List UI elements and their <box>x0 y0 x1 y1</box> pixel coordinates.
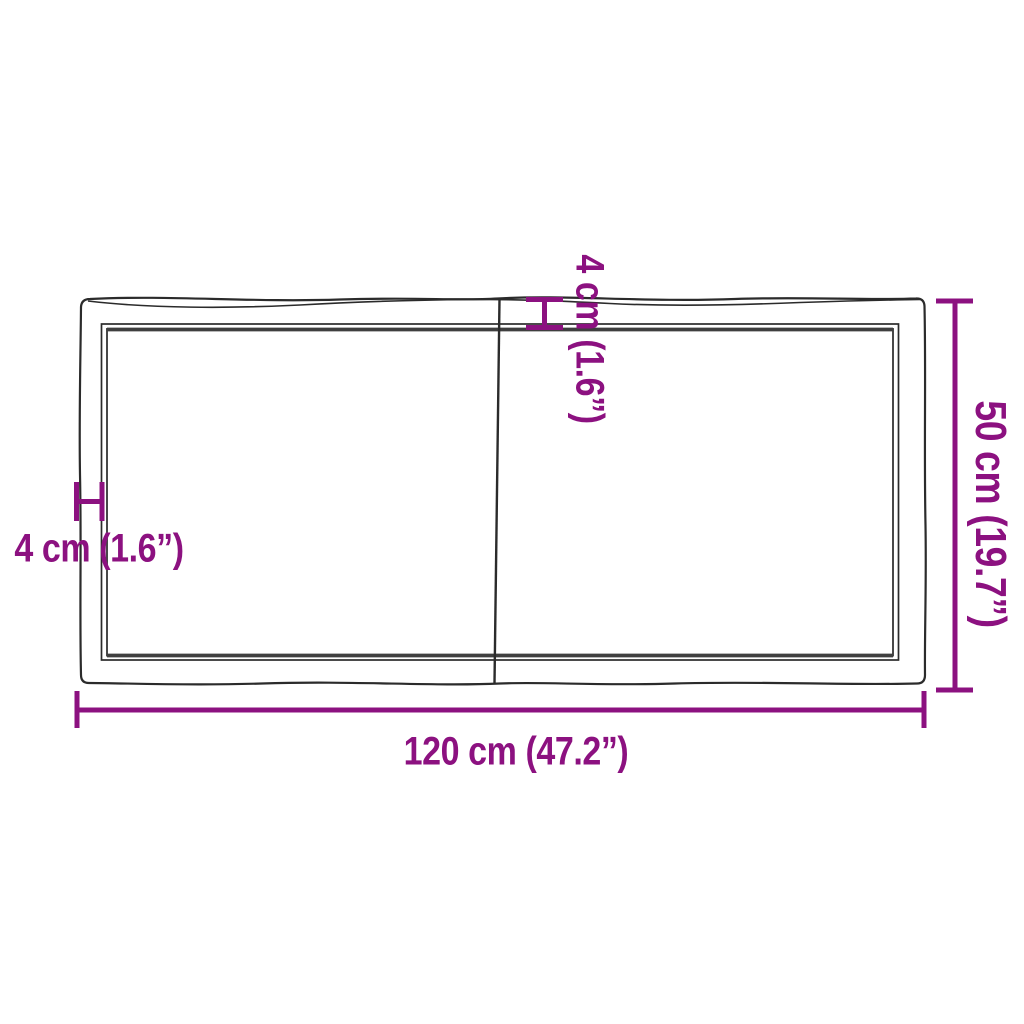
tabletop-live-edge-line <box>88 299 921 307</box>
dim-thickness-top-label: 4 cm (1.6”) <box>567 254 612 423</box>
dimension-diagram: 120 cm (47.2”) 50 cm (19.7”) 4 cm (1.6”)… <box>0 0 1024 1024</box>
tabletop-inner-edge-thin-line <box>102 324 899 660</box>
tabletop-inner-edge-second-line <box>107 329 893 656</box>
dim-thickness-left-label: 4 cm (1.6”) <box>14 527 183 572</box>
dim-depth-label: 50 cm (19.7”) <box>965 400 1015 627</box>
tabletop-outline <box>80 297 926 684</box>
dim-width-marker <box>77 691 924 728</box>
dim-width-label: 120 cm (47.2”) <box>404 730 629 775</box>
tabletop-seam-line <box>495 299 500 683</box>
diagram-canvas <box>0 0 1024 1024</box>
